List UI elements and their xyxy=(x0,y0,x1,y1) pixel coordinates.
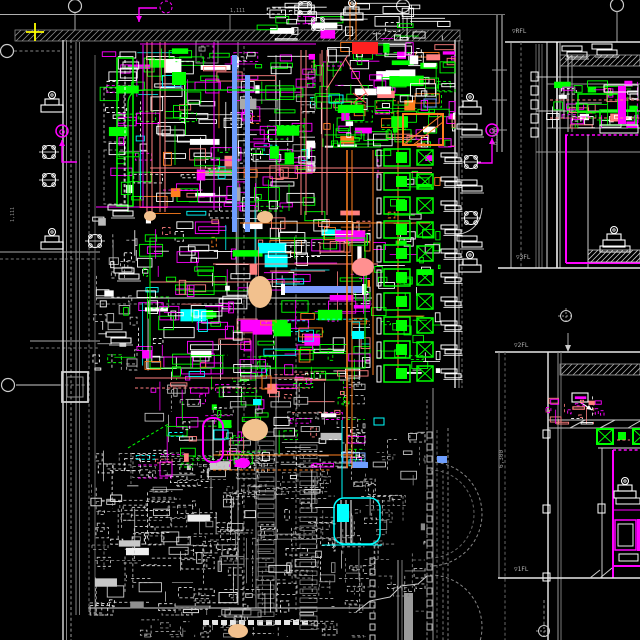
cad-viewport[interactable]: 1,1111,111▽RFL▽3FL▽2FL▽1FL6,3006,300 xyxy=(0,0,640,640)
cad-drawing-canvas[interactable]: 1,1111,111▽RFL▽3FL▽2FL▽1FL6,3006,300 xyxy=(0,0,640,640)
left-wall xyxy=(62,40,95,640)
svg-text:6,300: 6,300 xyxy=(498,450,505,468)
svg-text:6,300: 6,300 xyxy=(492,127,499,145)
svg-text:▽RFL: ▽RFL xyxy=(512,28,527,35)
svg-text:1,111: 1,111 xyxy=(230,8,245,14)
detail-view-1 xyxy=(498,42,640,324)
svg-text:▽1FL: ▽1FL xyxy=(514,566,529,573)
right-wall xyxy=(427,15,507,640)
svg-text:▽2FL: ▽2FL xyxy=(514,342,529,349)
peach-blobs xyxy=(144,211,374,638)
svg-text:1,111: 1,111 xyxy=(10,207,16,222)
equipment-clusters xyxy=(100,3,455,468)
magenta-marks xyxy=(56,1,498,478)
crosshair-cursor xyxy=(26,23,44,41)
svg-text:▽3FL: ▽3FL xyxy=(516,254,531,261)
